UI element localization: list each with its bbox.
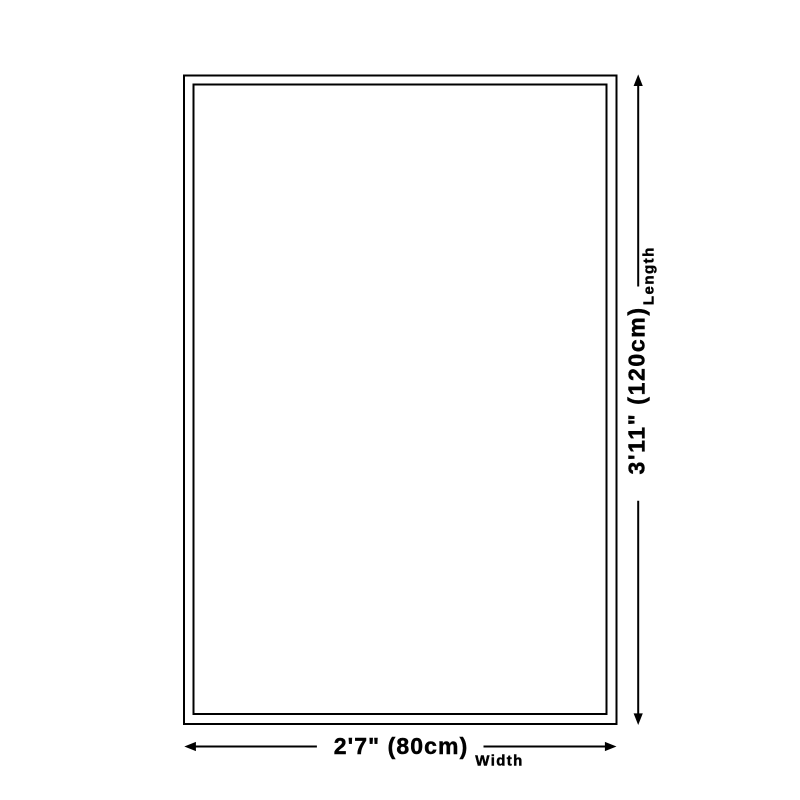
svg-text:2'7" (80cm): 2'7" (80cm) [334,733,468,759]
svg-text:Length: Length [641,248,658,306]
svg-text:3'11" (120cm): 3'11" (120cm) [623,308,649,475]
svg-text:Width: Width [475,753,522,770]
